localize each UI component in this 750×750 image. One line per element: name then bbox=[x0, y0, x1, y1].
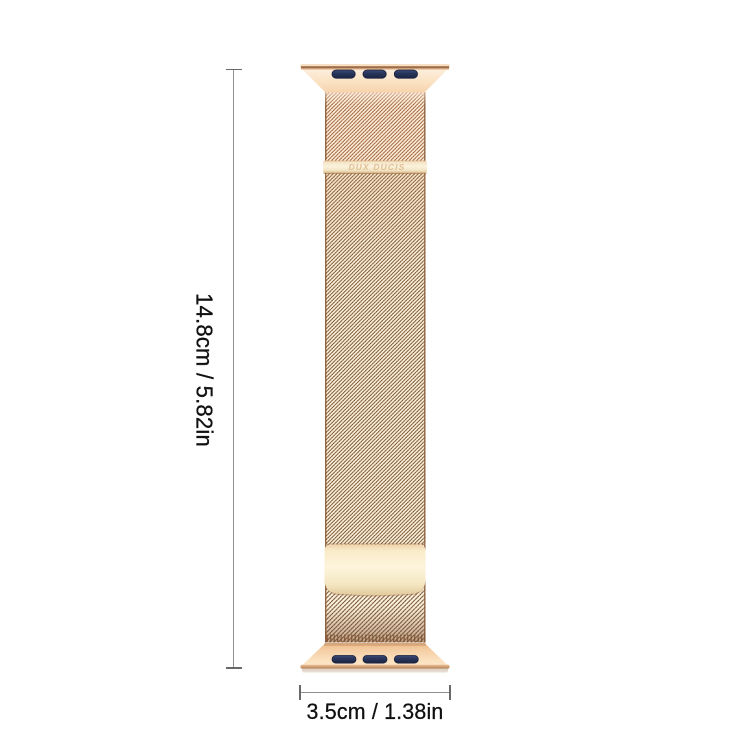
svg-text:DUX DUCIS: DUX DUCIS bbox=[349, 162, 406, 172]
